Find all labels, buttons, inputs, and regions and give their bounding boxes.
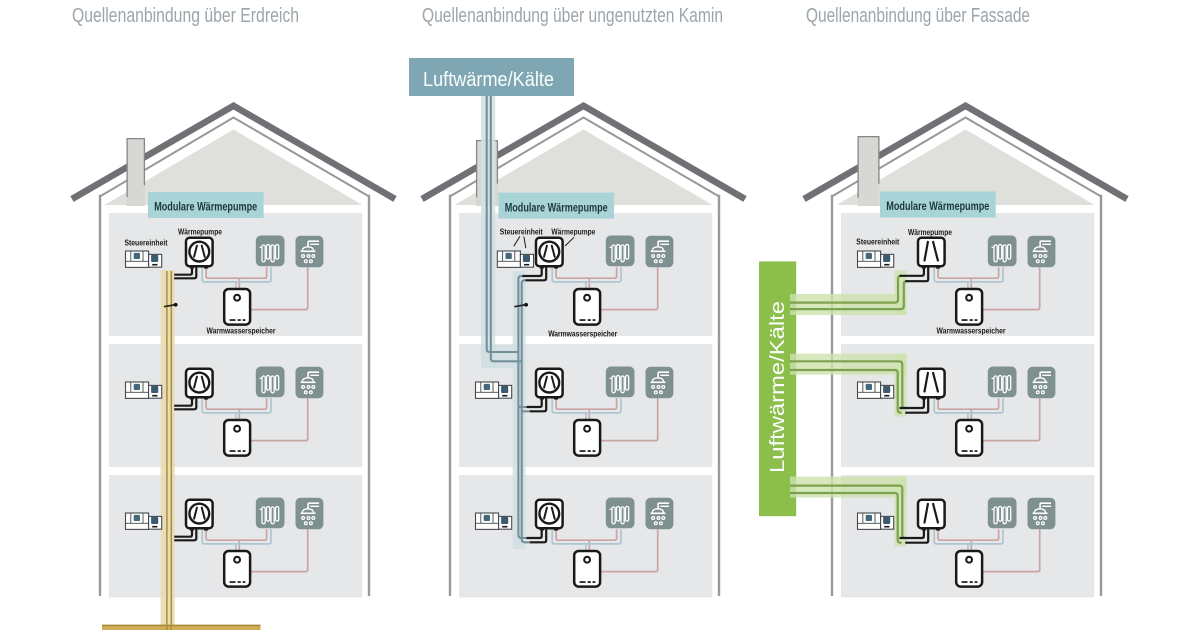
svg-text:Luftwärme/Kälte: Luftwärme/Kälte xyxy=(766,301,789,473)
svg-text:Wärmepumpe: Wärmepumpe xyxy=(178,226,222,236)
svg-text:Quellenanbindung über Erdreich: Quellenanbindung über Erdreich xyxy=(72,5,299,27)
svg-text:Quellenanbindung über Fassade: Quellenanbindung über Fassade xyxy=(806,5,1030,27)
svg-text:Warmwasserspeicher: Warmwasserspeicher xyxy=(937,326,1007,336)
svg-text:Modulare Wärmepumpe: Modulare Wärmepumpe xyxy=(154,200,257,214)
svg-text:Warmwasserspeicher: Warmwasserspeicher xyxy=(207,326,277,336)
svg-text:Modulare Wärmepumpe: Modulare Wärmepumpe xyxy=(886,199,989,213)
svg-text:Wärmepumpe: Wärmepumpe xyxy=(551,227,595,237)
svg-text:Wärmepumpe: Wärmepumpe xyxy=(908,227,952,237)
svg-text:Steuereinheit: Steuereinheit xyxy=(125,237,168,247)
svg-text:Luftwärme/Kälte: Luftwärme/Kälte xyxy=(423,68,554,91)
svg-text:Steuereinheit: Steuereinheit xyxy=(856,237,899,247)
svg-text:Steuereinheit: Steuereinheit xyxy=(500,227,543,237)
svg-text:Modulare Wärmepumpe: Modulare Wärmepumpe xyxy=(505,200,608,214)
svg-text:Quellenanbindung über ungenutz: Quellenanbindung über ungenutzten Kamin xyxy=(422,5,723,27)
svg-text:Warmwasserspeicher: Warmwasserspeicher xyxy=(548,329,618,339)
